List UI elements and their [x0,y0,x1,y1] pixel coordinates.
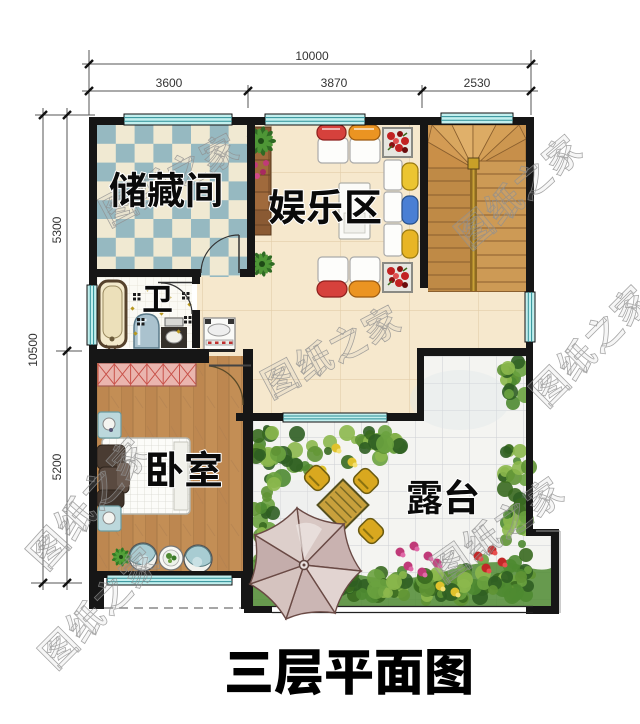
svg-text:5200: 5200 [50,453,64,480]
svg-text:10500: 10500 [26,333,40,367]
svg-text:3600: 3600 [156,76,183,90]
svg-text:2530: 2530 [464,76,491,90]
svg-text:5300: 5300 [50,216,64,243]
svg-text:3870: 3870 [321,76,348,90]
svg-text:10000: 10000 [295,49,329,63]
